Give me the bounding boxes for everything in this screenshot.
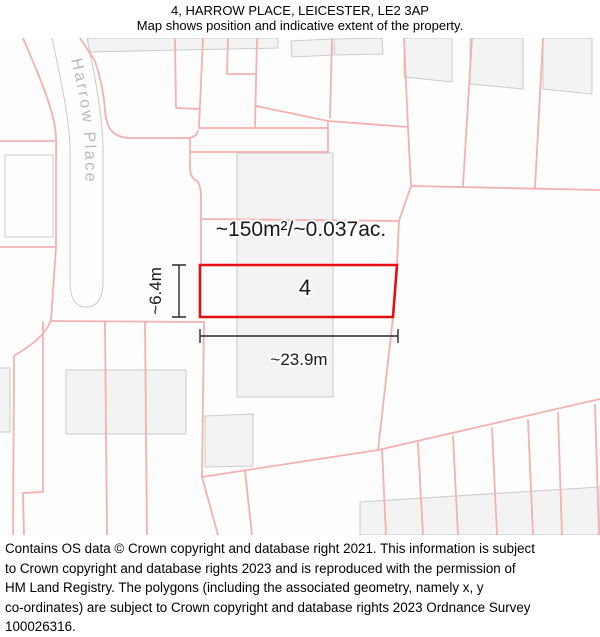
footer-line: 100026316.	[5, 617, 595, 637]
page-title: 4, HARROW PLACE, LEICESTER, LE2 3AP	[0, 0, 600, 18]
building	[66, 370, 186, 434]
width-dimension-label: ~23.9m	[270, 350, 327, 369]
building	[291, 39, 333, 57]
footer-line: HM Land Registry. The polygons (includin…	[5, 578, 595, 598]
footer-line: to Crown copyright and database rights 2…	[5, 559, 595, 579]
building	[404, 38, 452, 82]
plot-area-label: ~150m²/~0.037ac.	[216, 218, 386, 241]
building	[0, 368, 10, 432]
building	[5, 155, 53, 237]
boundary-line	[51, 321, 204, 322]
building	[543, 38, 592, 94]
building	[470, 38, 523, 89]
building	[334, 38, 383, 55]
map-canvas: Harrow Place 4 ~150m²/~0.037ac. ~6.4m ~2…	[0, 38, 600, 535]
plot-number-label: 4	[299, 275, 311, 300]
height-dimension-label: ~6.4m	[146, 267, 165, 315]
header: 4, HARROW PLACE, LEICESTER, LE2 3AP Map …	[0, 0, 600, 38]
page-subtitle: Map shows position and indicative extent…	[0, 18, 600, 34]
footer-line: Contains OS data © Crown copyright and d…	[5, 539, 595, 559]
footer-copyright: Contains OS data © Crown copyright and d…	[0, 535, 600, 637]
footer-line: co-ordinates) are subject to Crown copyr…	[5, 598, 595, 618]
property-map: Harrow Place 4 ~150m²/~0.037ac. ~6.4m ~2…	[0, 38, 600, 535]
building	[205, 414, 253, 467]
